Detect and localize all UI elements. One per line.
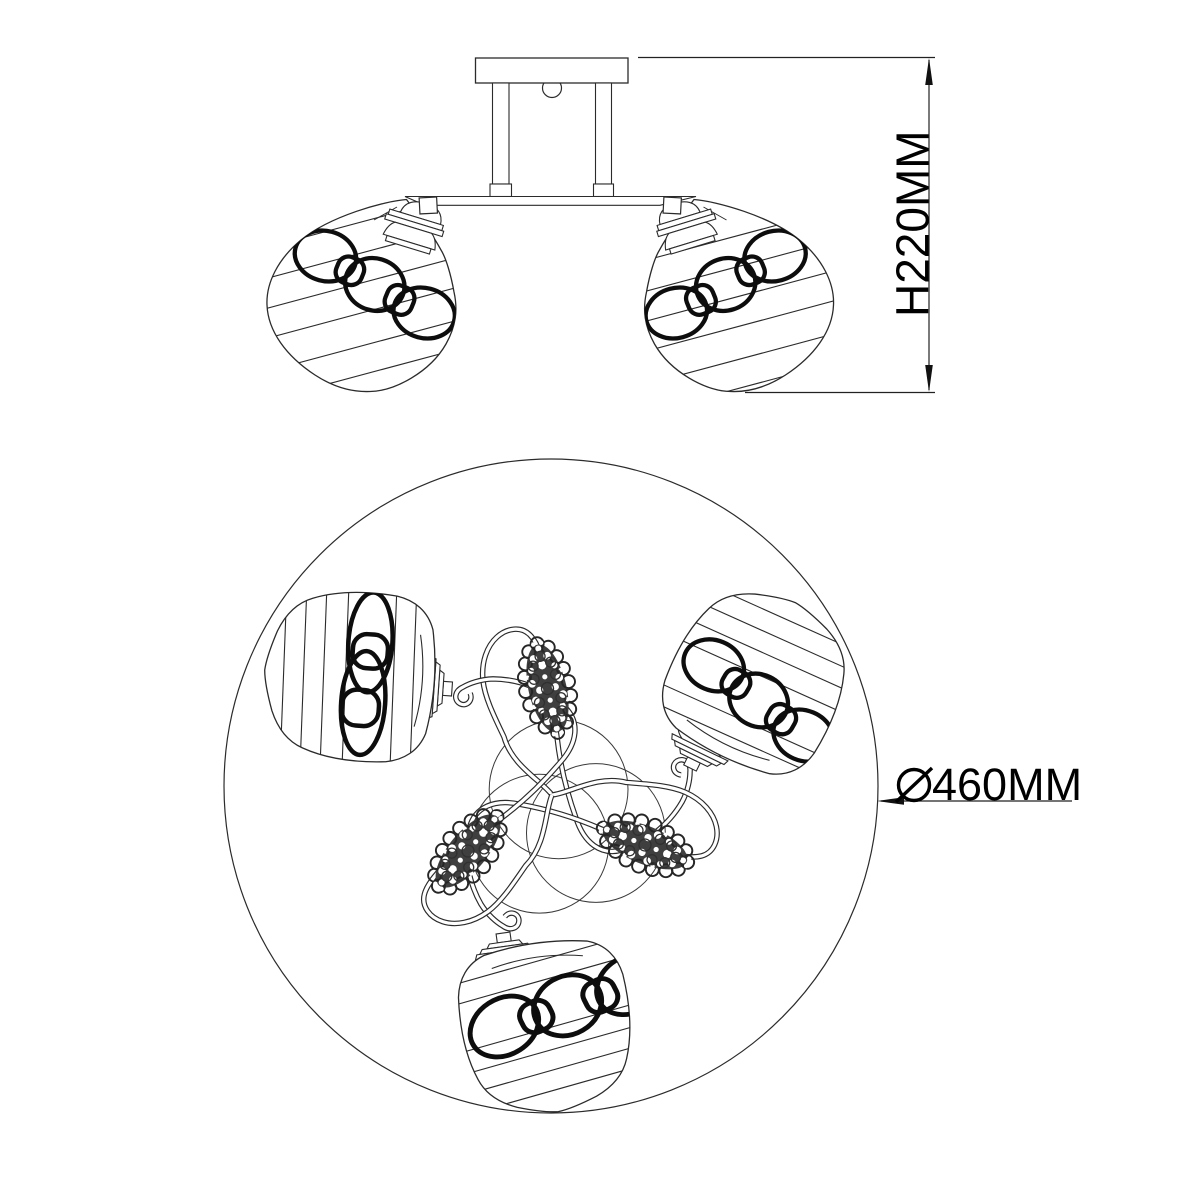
svg-text:H220MM: H220MM <box>887 130 939 317</box>
svg-text:460MM: 460MM <box>932 759 1082 810</box>
